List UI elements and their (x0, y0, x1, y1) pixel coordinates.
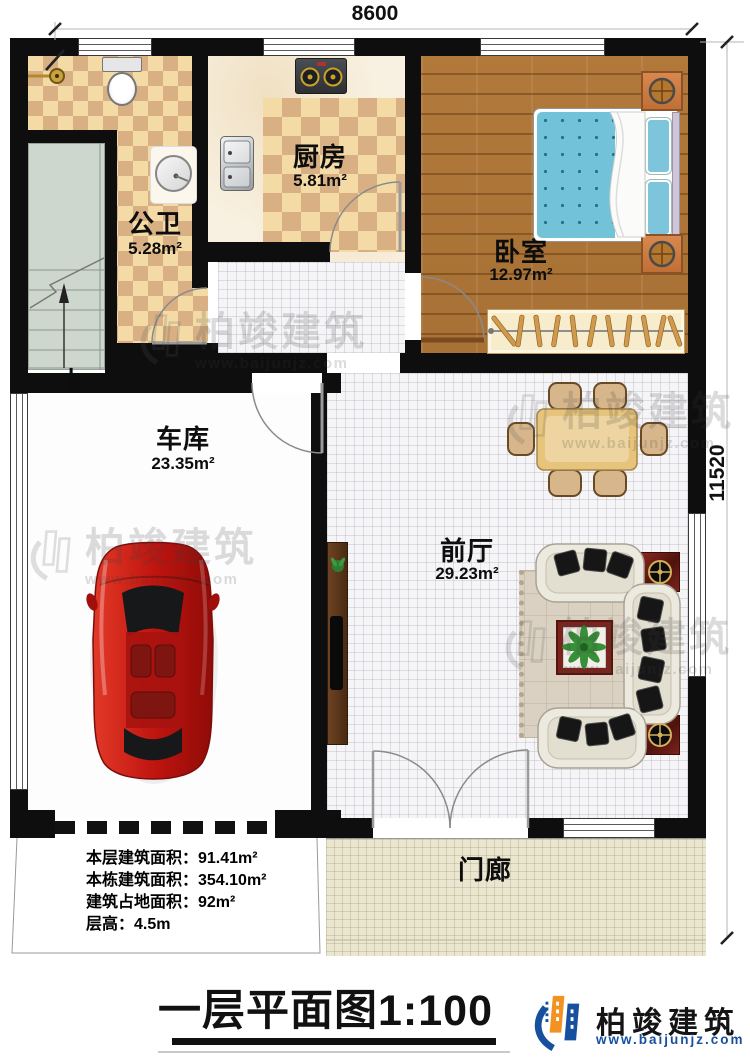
wall-segment (655, 818, 706, 838)
wall-segment (322, 373, 341, 393)
room-label-bedroom: 卧室 (478, 238, 564, 267)
stove (295, 58, 347, 94)
info-line: 建筑占地面积：92m² (86, 892, 267, 914)
watermark-logo-icon (501, 618, 553, 672)
staircase (28, 143, 105, 370)
bed-pillow (646, 118, 671, 174)
kitchen-sink (220, 136, 254, 191)
wall-segment (152, 38, 263, 56)
info-line: 本层建筑面积：91.41m² (86, 848, 267, 870)
room-area-bedroom: 12.97m² (476, 266, 566, 285)
room-label-kitchen: 厨房 (277, 143, 363, 172)
watermark-url: www.baijunjz.com (85, 571, 257, 588)
watermark-name: 柏竣建筑 (562, 392, 734, 432)
watermark: 柏竣建筑 www.baijunjz.com (501, 618, 732, 678)
room-label-garage: 车库 (138, 425, 228, 454)
brand-url: www.baijunjz.com (596, 1032, 745, 1047)
wall-segment (275, 810, 341, 838)
wall-segment (341, 818, 373, 838)
window (78, 38, 152, 56)
title-underline-thin (158, 1051, 510, 1053)
watermark-name: 柏竣建筑 (85, 528, 257, 568)
bathroom-sink (155, 155, 192, 192)
brand-logo-icon (530, 992, 588, 1052)
room-area-bathroom: 5.28m² (112, 240, 198, 259)
watermark-logo-icon (503, 392, 555, 446)
window (563, 818, 655, 838)
side-table (640, 552, 680, 592)
title-scale: 1:100 (378, 987, 493, 1035)
wall-segment (10, 810, 55, 838)
toilet-bowl (107, 72, 137, 106)
wall-segment (605, 38, 706, 56)
dimension-top: 8600 (335, 2, 415, 26)
watermark-name: 柏竣建筑 (195, 312, 367, 352)
info-line: 本栋建筑面积：354.10m² (86, 870, 267, 892)
watermark: 柏竣建筑 www.baijunjz.com (136, 312, 367, 372)
wall-segment (10, 38, 78, 56)
wall-kitchen-bedroom (405, 56, 421, 273)
room-area-kitchen: 5.81m² (277, 172, 363, 191)
window (10, 393, 28, 790)
wall-segment (355, 38, 480, 56)
watermark-name: 柏竣建筑 (560, 618, 732, 658)
tv (330, 616, 343, 690)
building-info: 本层建筑面积：91.41m² 本栋建筑面积：354.10m² 建筑占地面积：92… (86, 848, 267, 936)
bed-mattress (537, 112, 615, 238)
info-line: 层高：4.5m (86, 914, 267, 936)
wall-segment (688, 677, 706, 838)
watermark: 柏竣建筑 www.baijunjz.com (26, 528, 257, 588)
title-text: 一层平面图 (158, 987, 378, 1035)
wall-segment (405, 340, 421, 353)
watermark-url: www.baijunjz.com (560, 661, 732, 678)
wall-above-stairs (28, 130, 105, 143)
room-area-garage: 23.35m² (136, 455, 230, 474)
nightstand (641, 234, 683, 274)
room-label-porch: 门廊 (430, 856, 540, 885)
room-label-hall: 前厅 (422, 537, 512, 566)
page-title: 一层平面图1:100 (158, 976, 493, 1038)
garage-door-dashed (55, 821, 275, 834)
floor-plan-page: 8600 11520 公卫 5.28m² 厨房 5.81m² 卧室 12.97m… (0, 0, 750, 1064)
room-area-hall: 29.23m² (420, 565, 514, 584)
toilet-tank (102, 57, 142, 72)
wardrobe (487, 309, 685, 354)
watermark: 柏竣建筑 www.baijunjz.com (503, 392, 734, 452)
bed-headboard (672, 112, 680, 238)
bed-pillow (646, 180, 671, 236)
wall-kitchen-bottom (208, 242, 330, 262)
watermark-logo-icon (136, 312, 188, 366)
watermark-url: www.baijunjz.com (562, 435, 734, 452)
watermark-url: www.baijunjz.com (195, 355, 367, 372)
wall-segment (528, 818, 563, 838)
side-table (640, 715, 680, 755)
window (263, 38, 355, 56)
nightstand (641, 71, 683, 111)
wall-garage-hall (311, 393, 327, 818)
watermark-logo-icon (26, 528, 78, 582)
wall-segment (10, 56, 28, 393)
room-label-bathroom: 公卫 (112, 210, 198, 239)
title-underline-thick (172, 1038, 496, 1045)
stairs-up-label: 上 (54, 368, 90, 398)
wall-bedroom-bottom (400, 353, 688, 373)
window (480, 38, 605, 56)
